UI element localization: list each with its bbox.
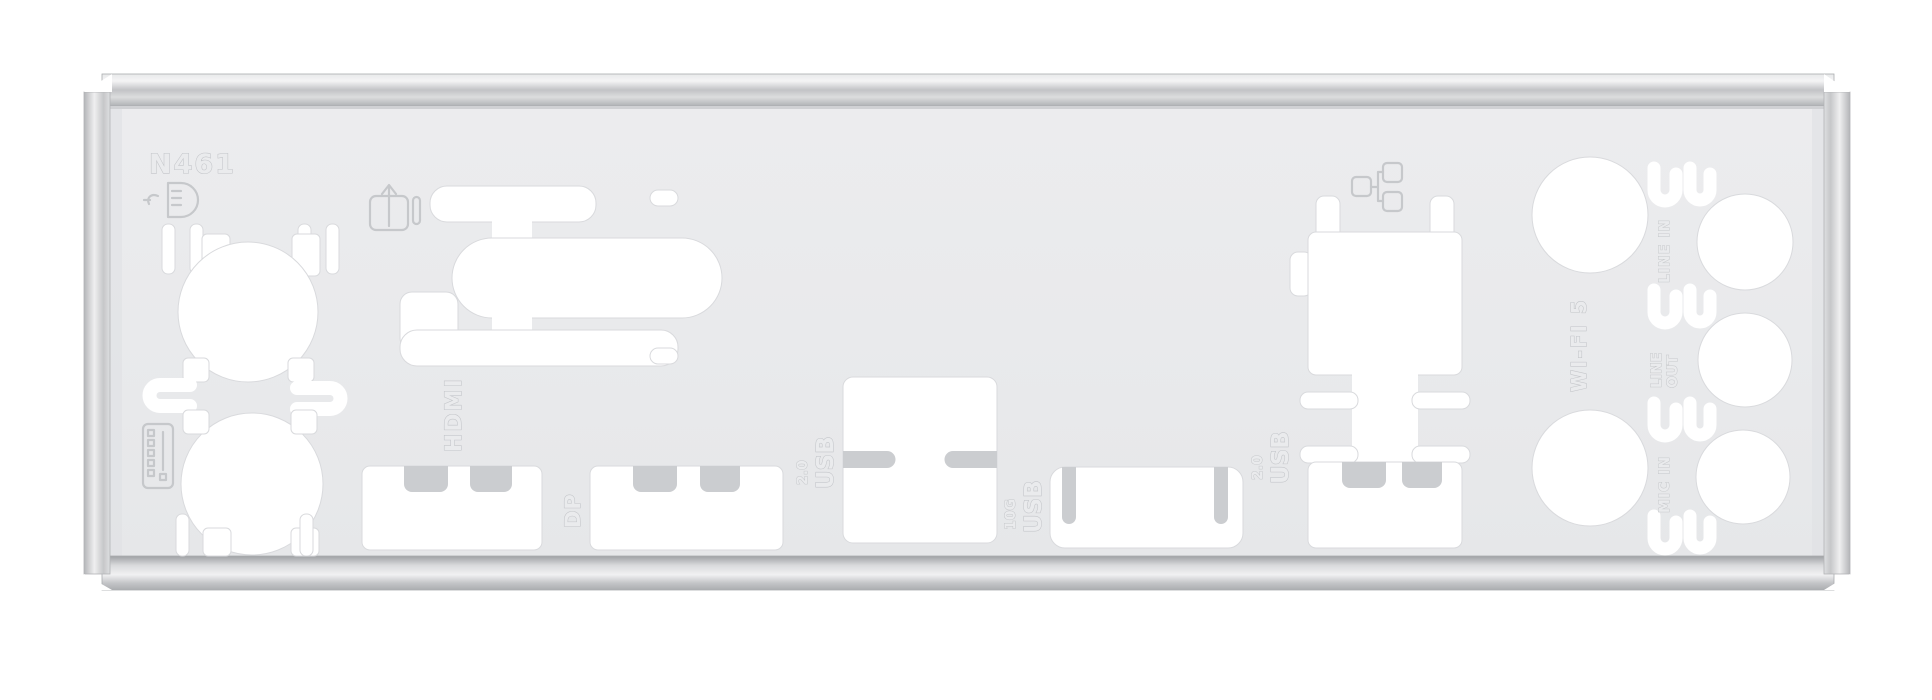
line-in-label: LINE IN [1657, 219, 1673, 283]
hook-slot-tab [1214, 467, 1228, 524]
spring-slot [176, 514, 189, 556]
spring-finger [1412, 446, 1470, 463]
spring-slot [162, 224, 175, 274]
top-fold-band [102, 74, 1834, 106]
port-finger-tab [404, 466, 448, 492]
wifi-antenna-hole-top [1532, 157, 1648, 273]
io-shield-plate: N461 HDMI DP USB 2.0 USB 10G USB 2.0 WI-… [0, 0, 1932, 700]
tab-notch [291, 410, 317, 434]
port-finger-tab [843, 451, 896, 468]
line-out-label-l1: LINE [1649, 353, 1665, 388]
column-neck [1352, 370, 1418, 470]
cluster-bottom-bar [400, 330, 678, 366]
top-crease-line [110, 106, 1826, 109]
usb-left-label: USB [813, 436, 839, 489]
port-finger-tab [1342, 462, 1386, 488]
cluster-finger [650, 190, 678, 206]
spring-finger [1300, 392, 1358, 409]
usb-10g-speed-label: 10G [1003, 499, 1019, 530]
port-finger-tab [945, 451, 998, 468]
usb-right-label: USB [1268, 431, 1294, 484]
hdmi-port-cutout [362, 466, 542, 550]
dp-port-cutout [590, 466, 783, 550]
bottom-fold-band [102, 556, 1834, 590]
spring-slot [326, 224, 339, 274]
tab-notch [183, 410, 209, 434]
tab-notch [288, 358, 314, 382]
spring-slot [300, 514, 313, 556]
audio-jack-hole-line-out [1698, 313, 1792, 407]
spring-finger [1412, 392, 1470, 409]
usb-stack-cutout [843, 377, 997, 543]
port-finger-tab [470, 466, 512, 492]
port-finger-tab [633, 466, 677, 492]
audio-jack-hole-line-in [1697, 194, 1793, 290]
usb-left-speed-label: 2.0 [795, 460, 811, 485]
port-finger-tab [1402, 462, 1442, 488]
usb-right-speed-label: 2.0 [1250, 455, 1266, 480]
hook-slot-tab [1062, 467, 1076, 524]
right-fold-tab [1824, 92, 1850, 574]
audio-jack-hole-mic-in [1696, 430, 1790, 524]
lan-usb-column-cutout [1290, 196, 1470, 548]
port-finger-tab [700, 466, 740, 492]
dp-label: DP [561, 493, 585, 528]
lan-port-hole [1308, 232, 1462, 375]
usb-10g-label: USB [1021, 480, 1047, 533]
line-out-label-l2: OUT [1665, 355, 1681, 388]
wifi-antenna-hole-bottom [1532, 410, 1648, 526]
wifi-label: WI-FI 5 [1567, 298, 1591, 392]
io-shield-photo: N461 HDMI DP USB 2.0 USB 10G USB 2.0 WI-… [0, 0, 1932, 700]
usb-wide-cutout [1050, 467, 1243, 548]
tab-notch [203, 528, 231, 556]
mic-in-label: MIC IN [1657, 456, 1673, 513]
cluster-finger [650, 348, 678, 364]
hdmi-label: HDMI [442, 377, 467, 452]
model-code-label: N461 [149, 149, 236, 180]
left-fold-tab [84, 92, 110, 574]
spring-finger [1300, 446, 1358, 463]
